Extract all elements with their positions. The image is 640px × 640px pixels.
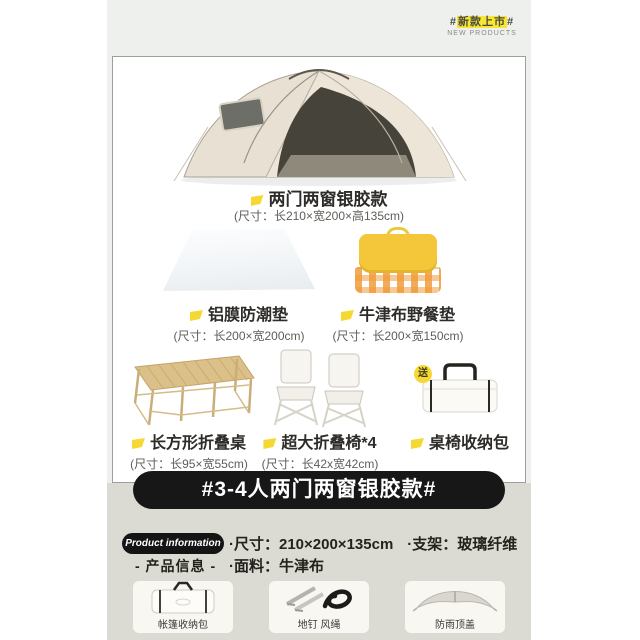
stakes-rope-icon <box>283 582 355 614</box>
folding-table-image <box>121 351 257 429</box>
gift-badge: 送 <box>414 365 432 383</box>
item-aluminum-mat: 铝膜防潮垫 (尺寸：长200×宽200cm) <box>139 227 339 344</box>
tent-bag-icon <box>150 581 216 615</box>
bundle-box: 两门两窗银胶款 (尺寸：长210×宽200×高135cm) 铝膜防潮垫 (尺寸：… <box>112 56 526 483</box>
spec-size: ·尺寸：210×200×135cm <box>229 536 393 553</box>
product-info-heading-cn: - 产品信息 - <box>135 556 216 576</box>
spec-line-1: ·尺寸：210×200×135cm·支架：玻璃纤维 <box>229 533 517 554</box>
spec-fabric: ·面料：牛津布 <box>229 555 324 576</box>
accessory-label: 地钉 风绳 <box>298 616 341 631</box>
picnic-mat-cover <box>359 234 437 273</box>
new-product-badge-subtitle: NEW PRODUCTS <box>437 30 527 37</box>
picnic-mat-image <box>355 227 441 293</box>
item-storage-bag: 送 桌椅收纳包 <box>390 349 530 453</box>
item-folding-table: 长方形折叠桌 (尺寸：长95×宽55cm) <box>113 349 265 472</box>
item-picnic-mat: 牛津布野餐垫 (尺寸：长200×宽150cm) <box>318 227 478 344</box>
item-size: (尺寸：长95×宽55cm) <box>113 455 265 472</box>
item-label: 超大折叠椅*4 <box>245 429 395 453</box>
aluminum-mat-image <box>163 229 315 291</box>
product-title-banner: #3-4人两门两窗银胶款# <box>133 471 505 509</box>
highlight-text: 新款上市 <box>457 16 507 28</box>
item-label: 牛津布野餐垫 <box>318 301 478 325</box>
flag-icon <box>251 195 264 206</box>
item-size: (尺寸：长42x宽42cm) <box>245 455 395 472</box>
spec-frame: ·支架：玻璃纤维 <box>407 536 517 553</box>
flag-icon <box>190 310 203 321</box>
product-detail-page: #新款上市# NEW PRODUCTS 两门两窗银胶款 (尺寸：长21 <box>0 0 640 640</box>
product-information-pill: Product information <box>122 533 224 554</box>
item-label: 铝膜防潮垫 <box>139 301 339 325</box>
item-folding-chairs: 超大折叠椅*4 (尺寸：长42x宽42cm) <box>245 349 395 472</box>
tent-image <box>166 59 472 187</box>
tent-size: (尺寸：长210×宽200×高135cm) <box>113 207 525 224</box>
item-size: (尺寸：长200×宽200cm) <box>139 327 339 344</box>
accessory-card-stakes-rope: 地钉 风绳 <box>269 581 369 633</box>
new-product-badge-title: #新款上市# <box>437 13 527 29</box>
storage-bag-image <box>421 363 499 415</box>
accessory-card-rain-cover: 防雨顶盖 <box>405 581 505 633</box>
item-size: (尺寸：长200×宽150cm) <box>318 327 478 344</box>
rain-cover-icon <box>413 584 497 612</box>
flag-icon <box>341 310 354 321</box>
accessory-card-tent-bag: 帐篷收纳包 <box>133 581 233 633</box>
new-product-badge: #新款上市# NEW PRODUCTS <box>437 13 527 37</box>
flag-icon <box>411 438 424 449</box>
flag-icon <box>263 438 276 449</box>
accessory-cards: 帐篷收纳包 地钉 风绳 <box>133 581 505 633</box>
flag-icon <box>132 438 145 449</box>
item-label: 桌椅收纳包 <box>390 429 530 453</box>
content-panel: #新款上市# NEW PRODUCTS 两门两窗银胶款 (尺寸：长21 <box>107 0 531 640</box>
item-label: 长方形折叠桌 <box>113 429 265 453</box>
accessory-label: 帐篷收纳包 <box>158 616 208 631</box>
accessory-label: 防雨顶盖 <box>435 616 475 631</box>
folding-chairs-image <box>269 349 371 429</box>
